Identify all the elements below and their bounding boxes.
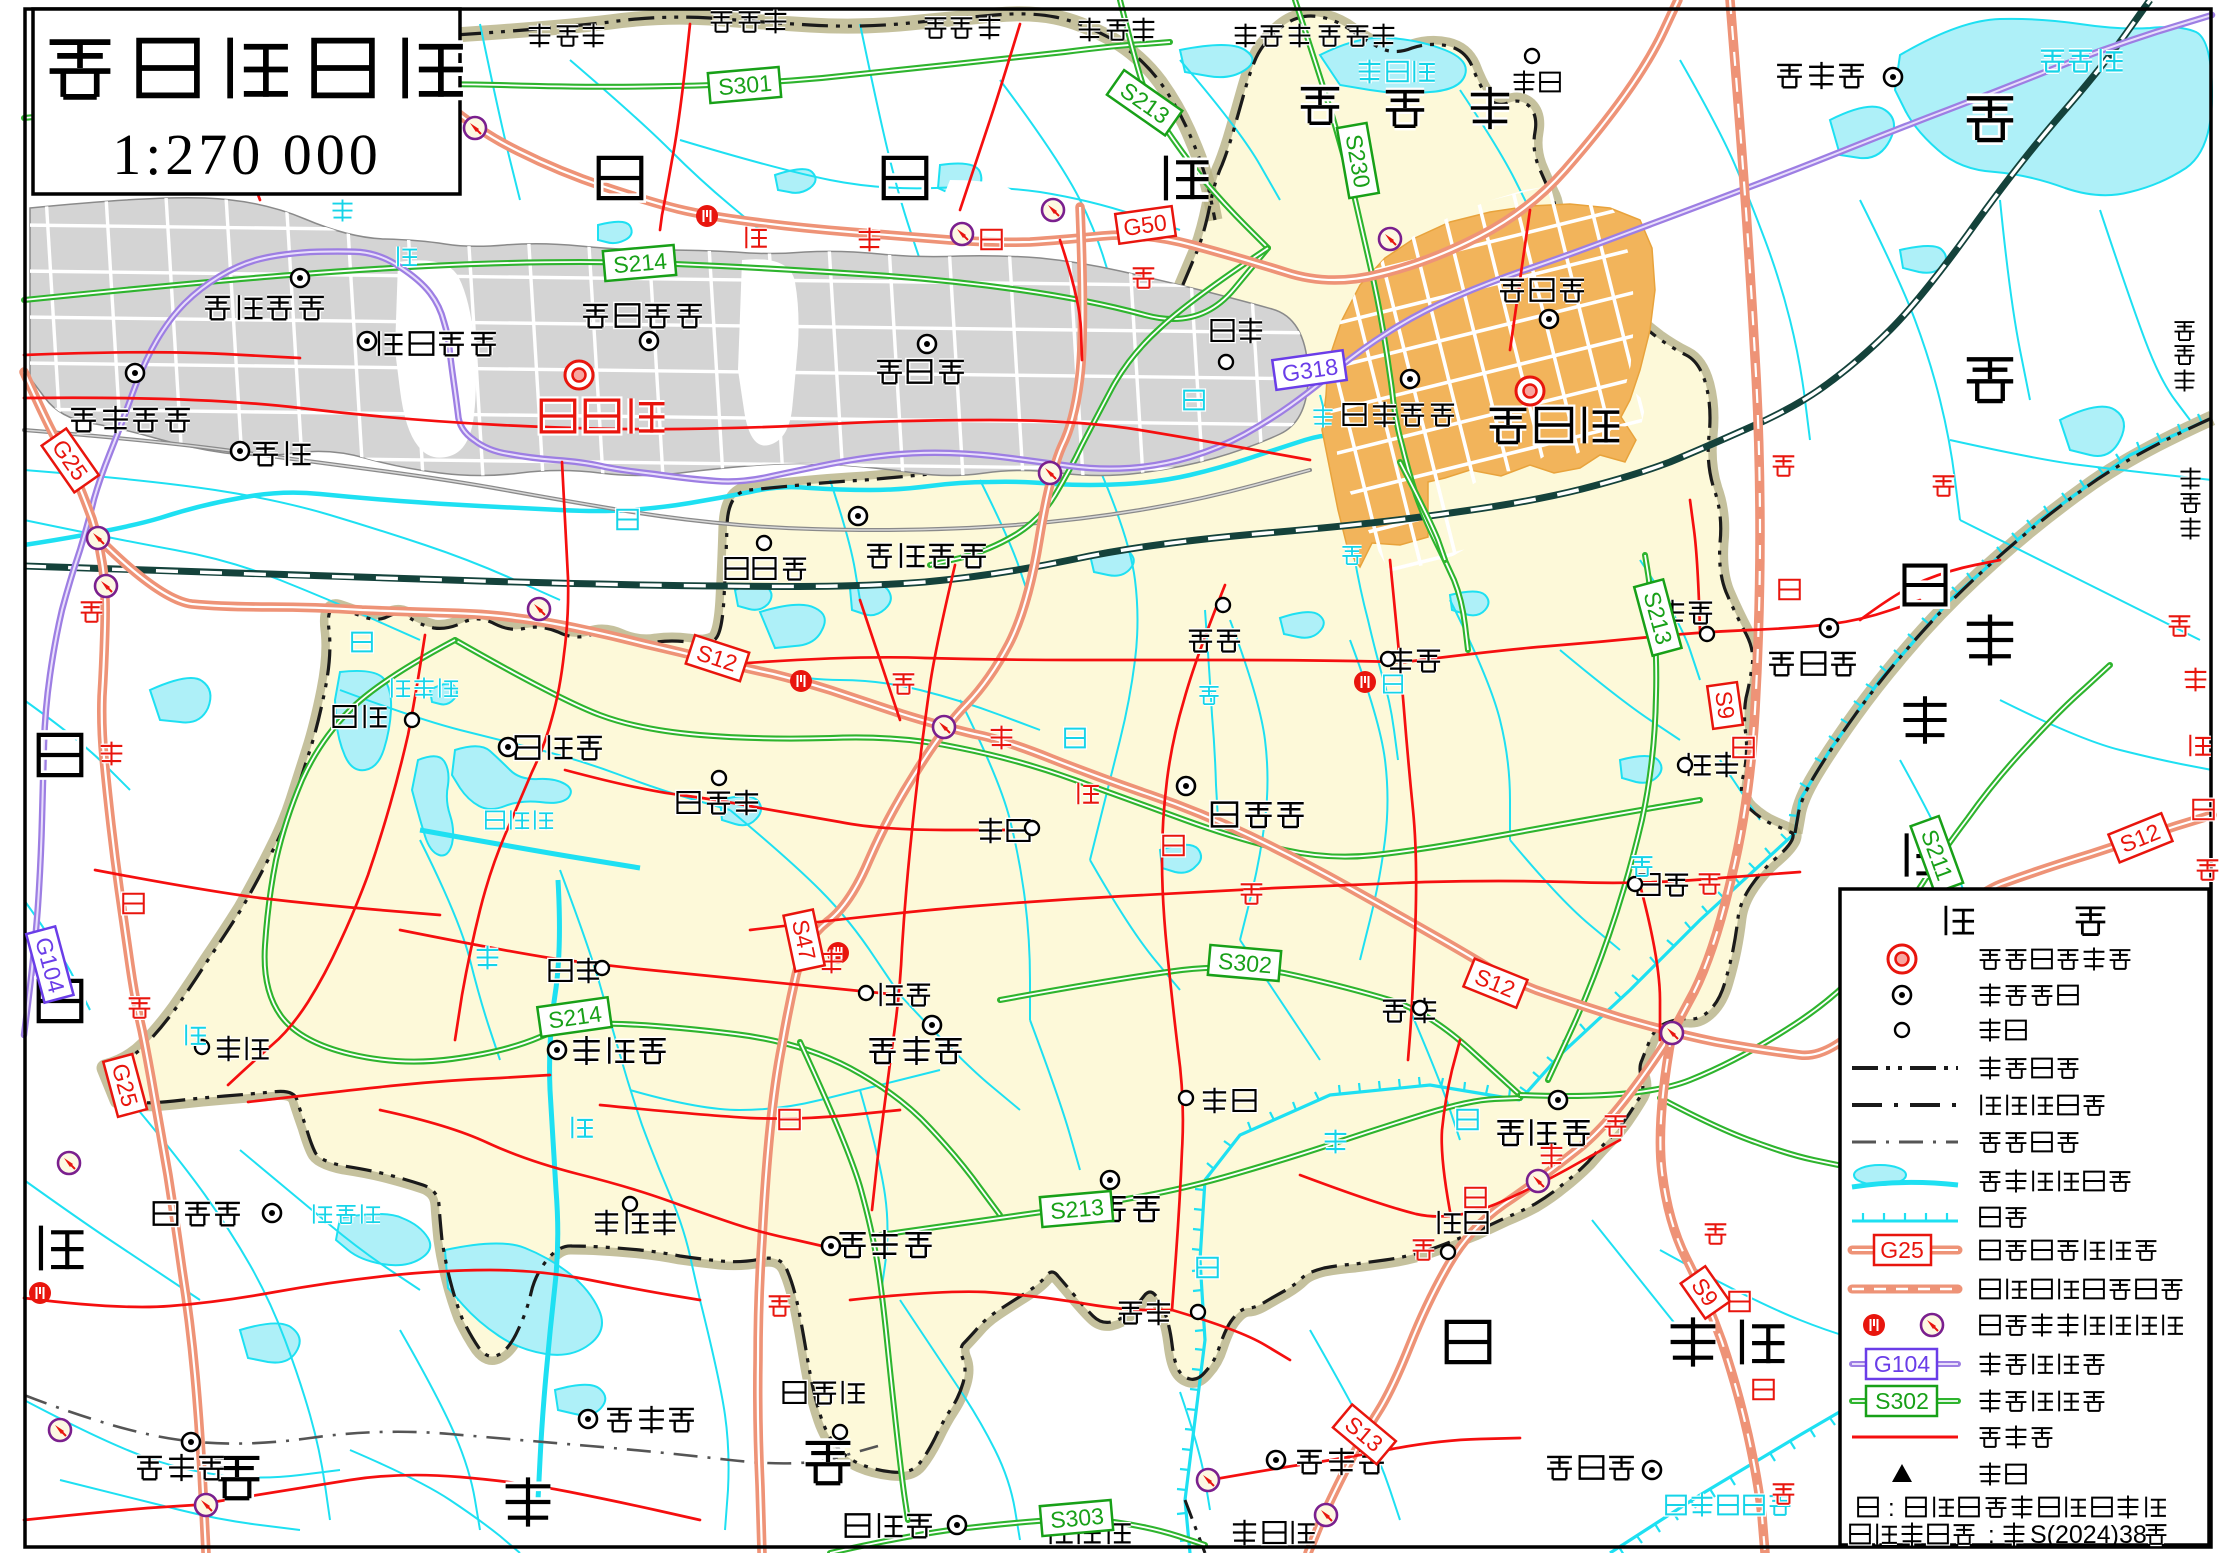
svg-text::: :	[1988, 1522, 1995, 1549]
svg-text:S214: S214	[612, 248, 668, 279]
svg-text::: :	[1888, 1495, 1895, 1522]
svg-text:S303: S303	[1049, 1503, 1105, 1534]
svg-text:S(2024)38: S(2024)38	[2030, 1521, 2147, 1549]
svg-text:S302: S302	[1217, 948, 1273, 979]
svg-text:S9: S9	[1710, 689, 1740, 720]
svg-text:S302: S302	[1875, 1388, 1929, 1414]
svg-text:S213: S213	[1049, 1194, 1105, 1225]
svg-text:G25: G25	[1880, 1237, 1923, 1263]
svg-text:1:270 000: 1:270 000	[112, 122, 382, 187]
svg-text:G104: G104	[1874, 1351, 1930, 1377]
svg-text:S301: S301	[717, 70, 773, 101]
